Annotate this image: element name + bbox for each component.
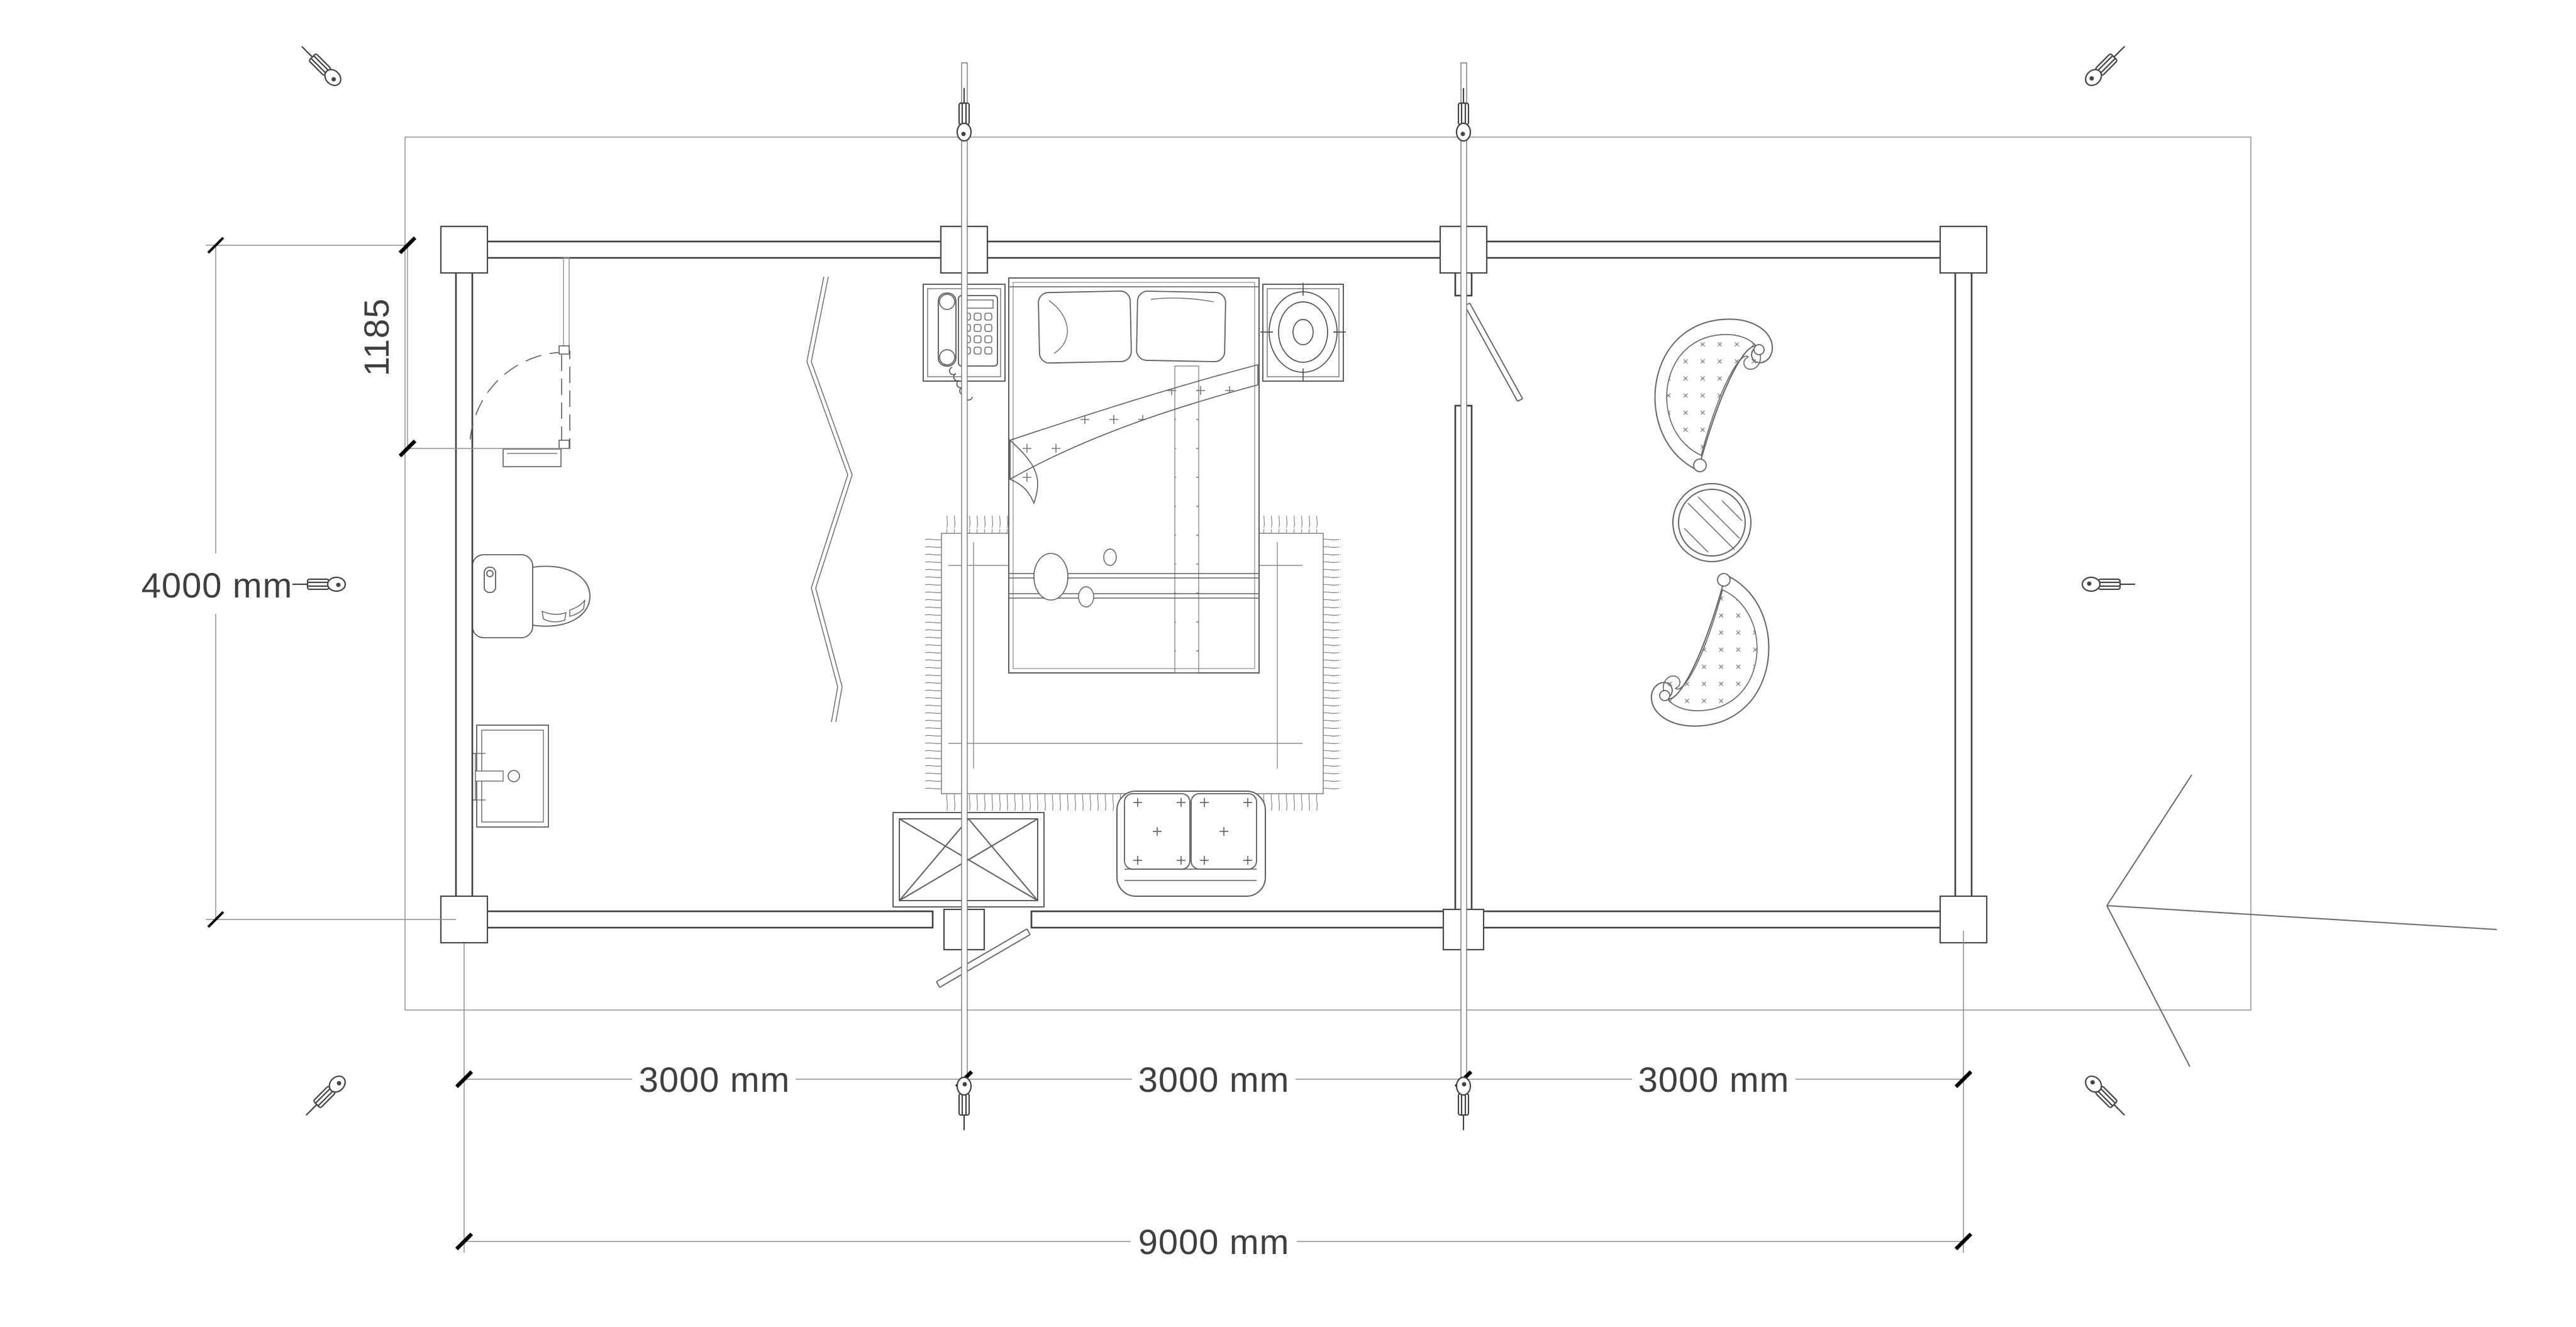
sink[interactable] bbox=[470, 725, 548, 827]
bathroom-partition bbox=[563, 258, 569, 351]
bed-runner bbox=[1175, 366, 1199, 673]
telephone-icon bbox=[938, 293, 997, 400]
turnbuckle-anchor-icon[interactable] bbox=[1457, 88, 1470, 141]
turnbuckle-anchor-icon[interactable] bbox=[292, 577, 345, 591]
turnbuckle-anchor-icon[interactable] bbox=[2082, 577, 2135, 591]
turnbuckle-anchor-icon[interactable] bbox=[2082, 42, 2129, 89]
window-crossed[interactable] bbox=[893, 813, 1044, 907]
segment-dimension-label-3[interactable]: 3000 mm bbox=[1638, 1060, 1789, 1099]
lounge-chair[interactable] bbox=[1655, 319, 1773, 472]
floorplan-canvas: 4000 mm 1185 3000 mm 3000 mm 3000 mm 900… bbox=[0, 0, 2576, 1327]
turnbuckle-anchor-icon[interactable] bbox=[297, 42, 344, 89]
pillow bbox=[1038, 291, 1131, 363]
turnbuckle-anchor-icon[interactable] bbox=[957, 88, 971, 141]
turnbuckle-anchor-icon[interactable] bbox=[2082, 1073, 2129, 1120]
turnbuckle-anchor-icon[interactable] bbox=[301, 1073, 348, 1120]
toilet[interactable] bbox=[472, 555, 590, 638]
lamp-nightstand[interactable] bbox=[1260, 283, 1346, 381]
terrace-door-leaf[interactable] bbox=[1465, 303, 1523, 401]
double-bed[interactable] bbox=[1009, 278, 1259, 673]
height-dimension-label[interactable]: 4000 mm bbox=[142, 565, 292, 605]
lounge-chair[interactable] bbox=[1652, 574, 1769, 726]
inset-dimension-label[interactable]: 1185 bbox=[357, 298, 396, 376]
loveseat-sofa[interactable] bbox=[1117, 791, 1265, 896]
segment-dimension-label-1[interactable]: 3000 mm bbox=[639, 1060, 790, 1099]
turnbuckle-anchor-icon[interactable] bbox=[957, 1077, 971, 1130]
round-table[interactable] bbox=[1673, 484, 1751, 562]
entrance-arrow-icon[interactable] bbox=[2107, 775, 2497, 1067]
segment-dimension-label-2[interactable]: 3000 mm bbox=[1138, 1060, 1289, 1099]
turnbuckle-anchor-icon[interactable] bbox=[1457, 1077, 1470, 1130]
total-dimension-label[interactable]: 9000 mm bbox=[1138, 1222, 1289, 1262]
pillow bbox=[1136, 291, 1226, 362]
curtain-partition[interactable] bbox=[807, 277, 852, 722]
